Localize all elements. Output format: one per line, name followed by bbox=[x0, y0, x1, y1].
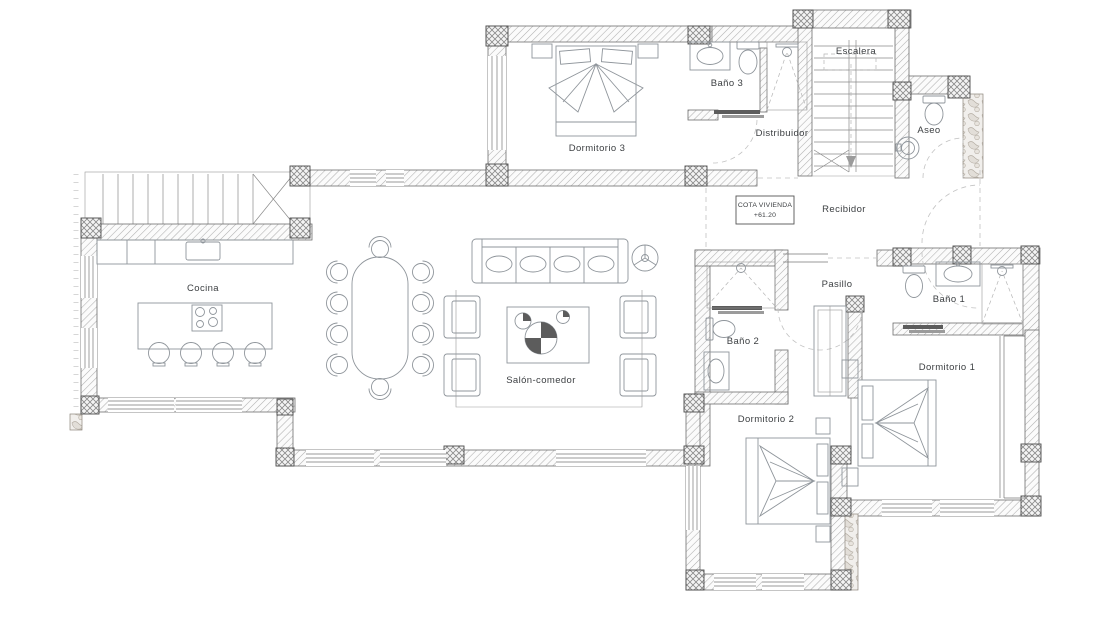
nightstand bbox=[532, 44, 552, 58]
armchair-icon bbox=[620, 354, 656, 396]
window-kitchen-bottom-2 bbox=[176, 398, 242, 412]
room-label-cocina: Cocina bbox=[187, 283, 219, 294]
room-label-salon-comedor: Salón-comedor bbox=[506, 375, 576, 386]
kitchen-sink-icon bbox=[186, 242, 220, 260]
kitchen-furniture bbox=[97, 239, 293, 366]
bano1-fixtures bbox=[903, 262, 1023, 324]
door-arc-distribuidor bbox=[713, 119, 757, 163]
stone-kitchen-corner bbox=[70, 414, 82, 430]
wall-dorm3-top bbox=[486, 26, 712, 42]
window-salon-bottom-3 bbox=[556, 450, 646, 466]
room-label-escalera: Escalera bbox=[836, 46, 876, 57]
cota-line2: +61.20 bbox=[754, 212, 776, 219]
window-dorm2-bottom-2 bbox=[762, 574, 804, 590]
window-salon-top-1 bbox=[350, 170, 376, 186]
door-arc-aseo bbox=[923, 138, 963, 178]
bar-stool-icon bbox=[149, 343, 170, 367]
room-label-bano-2: Baño 2 bbox=[727, 336, 760, 347]
room-label-distribuidor: Distribuidor bbox=[756, 128, 809, 139]
sofa-icon bbox=[472, 239, 628, 283]
windows bbox=[81, 56, 1025, 590]
wall-dorm1-right bbox=[1025, 330, 1039, 516]
bar-stool-icon bbox=[245, 343, 266, 367]
nightstand bbox=[816, 418, 830, 434]
room-label-dormitorio-2: Dormitorio 2 bbox=[738, 414, 795, 425]
sliding-door-bano3 bbox=[714, 110, 764, 118]
wall-bano2-bottom bbox=[695, 392, 788, 404]
armchair-icon bbox=[620, 296, 656, 338]
armchair-icon bbox=[444, 354, 480, 396]
dorm3-furniture bbox=[532, 44, 658, 136]
interior-staircase bbox=[814, 40, 893, 172]
dining-table bbox=[352, 257, 408, 379]
window-dorm2-bottom-1 bbox=[714, 574, 756, 590]
window-dorm1-bottom-1 bbox=[882, 500, 932, 516]
wall-stair-bottom bbox=[83, 224, 312, 240]
wall-dorm-divider bbox=[831, 452, 847, 590]
sliding-door-bano1 bbox=[903, 325, 945, 333]
room-label-bano-1: Baño 1 bbox=[933, 294, 966, 305]
toilet-icon bbox=[923, 96, 945, 125]
exterior-staircase bbox=[85, 172, 310, 226]
window-dorm1-bottom-2 bbox=[940, 500, 994, 516]
window-kitchen-bottom-1 bbox=[108, 398, 174, 412]
bar-stool-icon bbox=[213, 343, 234, 367]
shower-icon bbox=[982, 264, 1023, 324]
room-label-bano-3: Baño 3 bbox=[711, 78, 744, 89]
toilet-icon bbox=[737, 42, 759, 74]
floor-plan-drawing: COTA VIVIENDA +61.20 Cocina Salón-comedo… bbox=[0, 0, 1110, 626]
room-label-dormitorio-3: Dormitorio 3 bbox=[569, 143, 626, 154]
wall-dorm1-bottom bbox=[838, 500, 1038, 516]
window-dorm2-left bbox=[686, 466, 700, 530]
toilet-icon bbox=[903, 266, 925, 298]
rug-outline bbox=[456, 290, 642, 407]
wall-bano3-shower bbox=[760, 48, 767, 112]
window-salon-bottom-2 bbox=[380, 450, 446, 466]
bed-icon bbox=[746, 438, 830, 524]
window-kitchen-left-1 bbox=[81, 256, 97, 298]
bed-icon bbox=[549, 46, 643, 136]
window-dorm3-left bbox=[488, 56, 506, 150]
wall-escalera-right bbox=[895, 28, 909, 178]
window-kitchen-left-2 bbox=[81, 328, 97, 368]
window-salon-top-2 bbox=[386, 170, 404, 186]
dining-furniture bbox=[327, 237, 434, 400]
shower-icon bbox=[707, 262, 775, 308]
washbasin-icon bbox=[936, 262, 980, 286]
wall-bano2-shower-right bbox=[775, 250, 788, 310]
bed-icon bbox=[858, 380, 936, 466]
bano3-fixtures bbox=[690, 42, 807, 110]
window-dorm1-right-glazing bbox=[1000, 336, 1025, 498]
cota-line1: COTA VIVIENDA bbox=[738, 202, 792, 209]
room-label-recibidor: Recibidor bbox=[822, 204, 866, 215]
bano2-fixtures bbox=[704, 262, 775, 390]
stone-aseo-right bbox=[963, 94, 983, 178]
coffee-table-icon bbox=[507, 307, 589, 363]
armchair-icon bbox=[444, 296, 480, 338]
room-label-pasillo: Pasillo bbox=[822, 279, 853, 290]
nightstand bbox=[816, 526, 830, 542]
sliding-door-bano2 bbox=[712, 306, 764, 314]
cota-vivienda-box: COTA VIVIENDA +61.20 bbox=[736, 196, 794, 224]
wall-bano3-top bbox=[712, 26, 806, 42]
wall-bano3-bottom bbox=[688, 110, 718, 120]
shower-head-icon bbox=[783, 48, 792, 57]
washbasin-icon bbox=[690, 42, 730, 70]
room-label-aseo: Aseo bbox=[917, 125, 940, 136]
room-label-dormitorio-1: Dormitorio 1 bbox=[919, 362, 976, 373]
kitchen-counter bbox=[97, 239, 293, 264]
cooktop-icon bbox=[192, 305, 222, 331]
floor-plan-canvas: COTA VIVIENDA +61.20 Cocina Salón-comedo… bbox=[0, 0, 1110, 626]
bar-stool-icon bbox=[181, 343, 202, 367]
side-table-icon bbox=[632, 245, 658, 271]
nightstand bbox=[638, 44, 658, 58]
wall-escalera-left bbox=[798, 28, 812, 176]
closet-icon bbox=[814, 306, 846, 396]
window-salon-bottom-1 bbox=[306, 450, 374, 466]
